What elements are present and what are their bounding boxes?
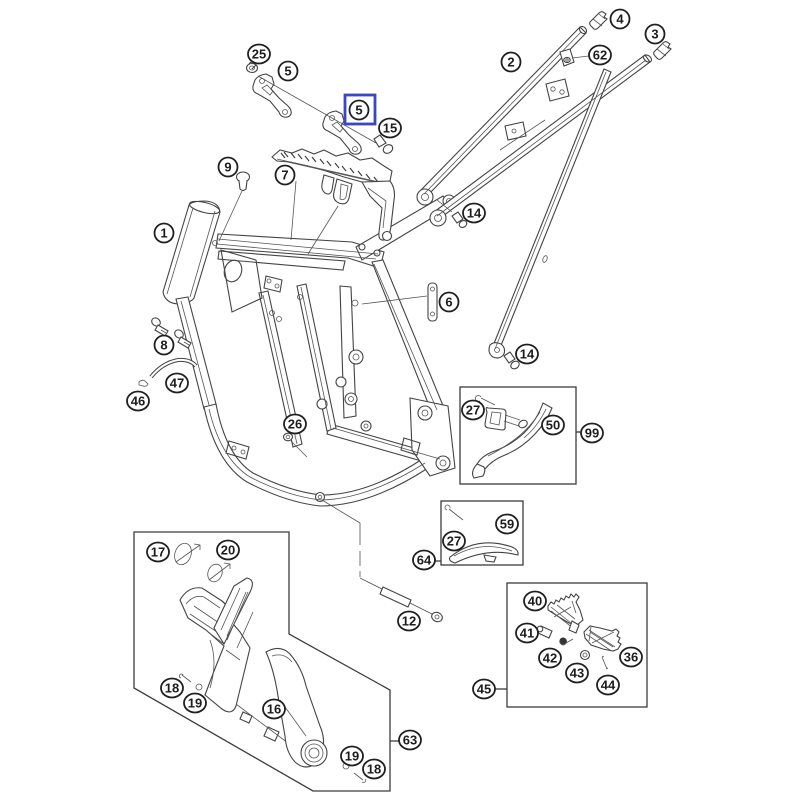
svg-text:27: 27 (447, 534, 461, 549)
svg-text:18: 18 (367, 762, 381, 777)
svg-text:16: 16 (267, 702, 281, 717)
svg-text:99: 99 (585, 426, 599, 441)
svg-text:3: 3 (651, 27, 658, 42)
svg-text:27: 27 (466, 403, 480, 418)
svg-text:18: 18 (165, 681, 179, 696)
svg-text:20: 20 (221, 543, 235, 558)
svg-text:41: 41 (520, 626, 534, 641)
svg-text:59: 59 (500, 517, 514, 532)
svg-text:12: 12 (402, 614, 416, 629)
svg-text:19: 19 (345, 749, 359, 764)
svg-text:14: 14 (520, 347, 535, 362)
svg-text:17: 17 (151, 545, 165, 560)
svg-text:42: 42 (543, 651, 557, 666)
svg-text:40: 40 (528, 594, 542, 609)
svg-text:4: 4 (616, 12, 624, 27)
svg-text:46: 46 (131, 394, 145, 409)
svg-text:47: 47 (170, 376, 184, 391)
svg-text:26: 26 (288, 417, 302, 432)
svg-text:43: 43 (570, 666, 584, 681)
svg-text:25: 25 (252, 47, 266, 62)
svg-text:63: 63 (403, 733, 417, 748)
svg-text:7: 7 (281, 168, 288, 183)
svg-text:50: 50 (546, 418, 560, 433)
svg-text:5: 5 (355, 103, 362, 118)
svg-text:1: 1 (160, 226, 167, 241)
svg-text:62: 62 (593, 48, 607, 63)
svg-text:14: 14 (467, 206, 482, 221)
svg-text:2: 2 (507, 55, 514, 70)
svg-text:9: 9 (224, 160, 231, 175)
svg-text:6: 6 (445, 295, 452, 310)
svg-text:15: 15 (383, 121, 397, 136)
svg-text:64: 64 (417, 553, 432, 568)
svg-text:45: 45 (477, 682, 491, 697)
svg-text:44: 44 (601, 678, 616, 693)
svg-text:19: 19 (188, 696, 202, 711)
svg-text:36: 36 (624, 650, 638, 665)
svg-text:5: 5 (284, 64, 291, 79)
svg-text:8: 8 (160, 338, 167, 353)
